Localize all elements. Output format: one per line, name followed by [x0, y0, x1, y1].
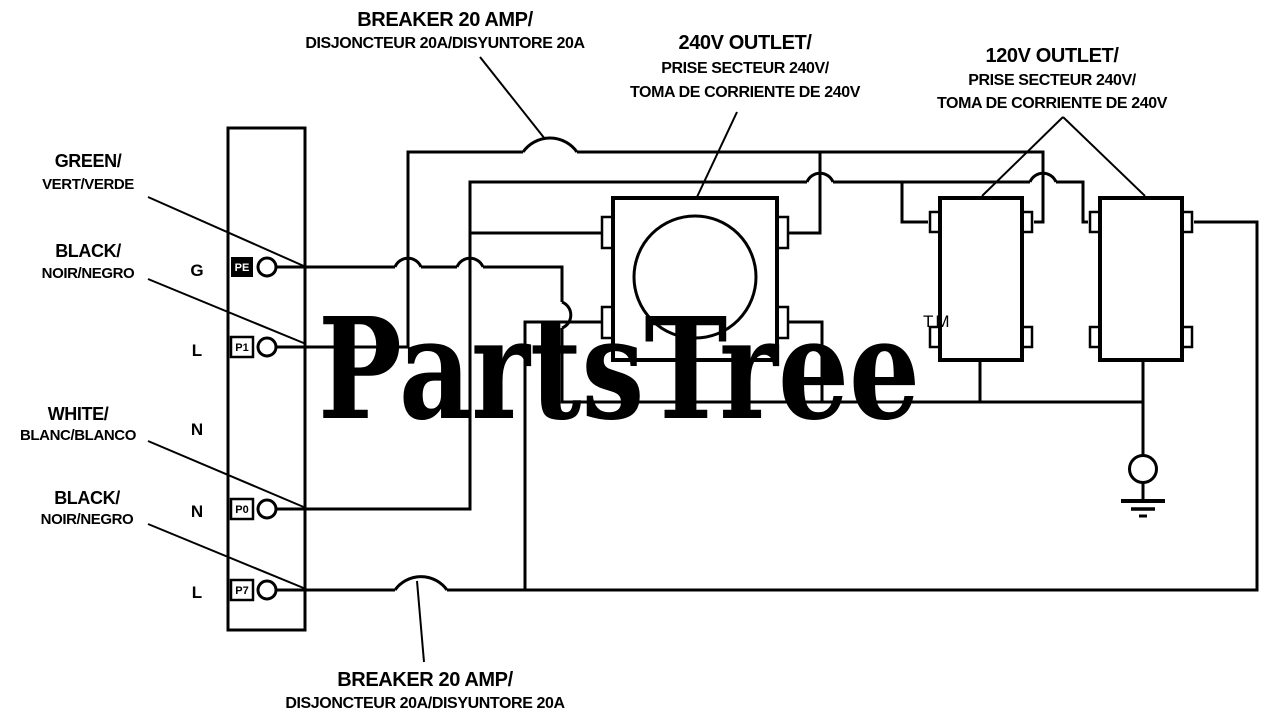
wiring-diagram-page: PartsTree TM G PE L P1 N N P0 L P7: [0, 0, 1280, 726]
wire-black-1-title: BLACK/: [55, 241, 121, 261]
ground-circle: [1130, 456, 1157, 483]
wire-black-2-subtitle: NOIR/NEGRO: [41, 511, 134, 528]
outlet-120v-b-body: [1100, 198, 1182, 360]
terminal-g-tag: PE: [235, 262, 250, 274]
label-breaker-bottom: BREAKER 20 AMP/ DISJONCTEUR 20A/DISYUNTO…: [285, 669, 565, 712]
panel-outline: [228, 128, 305, 630]
terminal-l1-letter: L: [192, 341, 202, 360]
outlet-120v-subtitle-fr: PRISE SECTEUR 240V/: [968, 72, 1137, 89]
breaker-bottom-subtitle: DISJONCTEUR 20A/DISYUNTORE 20A: [285, 695, 565, 712]
terminal-g: G PE: [190, 257, 276, 280]
breaker-top-subtitle: DISJONCTEUR 20A/DISYUNTORE 20A: [305, 35, 585, 52]
terminal-l1-screw: [258, 338, 276, 356]
leader-outlet-120v-right: [1063, 117, 1145, 196]
breaker-bottom-hump: [395, 577, 447, 590]
wire-white-title: WHITE/: [48, 404, 109, 424]
wire-green-title: GREEN/: [55, 151, 122, 171]
label-wire-black-1: BLACK/ NOIR/NEGRO: [42, 241, 135, 282]
outlet-120v-a-body: [940, 198, 1022, 360]
terminal-n1-letter: N: [191, 420, 203, 439]
terminal-l2-letter: L: [192, 583, 202, 602]
outlet-120v-a: [930, 198, 1032, 360]
watermark: PartsTree TM: [318, 288, 952, 452]
breaker-bottom-title: BREAKER 20 AMP/: [337, 669, 513, 691]
terminal-g-screw: [258, 258, 276, 276]
leader-breaker-top: [480, 57, 545, 139]
breaker-top-symbol: [523, 138, 577, 152]
breaker-top-title: BREAKER 20 AMP/: [357, 9, 533, 31]
label-wire-black-2: BLACK/ NOIR/NEGRO: [41, 488, 134, 528]
label-outlet-240v: 240V OUTLET/ PRISE SECTEUR 240V/ TOMA DE…: [630, 32, 861, 101]
ground-symbol: [1121, 456, 1165, 517]
generator-panel: [228, 128, 305, 630]
terminal-n2-screw: [258, 500, 276, 518]
wire-white-subtitle: BLANC/BLANCO: [20, 427, 137, 444]
terminal-l2: L P7: [192, 580, 276, 602]
leader-breaker-bottom: [417, 581, 424, 662]
terminal-l1-tag: P1: [235, 342, 248, 354]
outlet-120v-subtitle-es: TOMA DE CORRIENTE DE 240V: [937, 95, 1168, 112]
leader-outlet-240v: [697, 112, 737, 197]
label-outlet-120v: 120V OUTLET/ PRISE SECTEUR 240V/ TOMA DE…: [937, 45, 1168, 112]
terminal-n2-letter: N: [191, 502, 203, 521]
wire-black-2-title: BLACK/: [54, 488, 120, 508]
label-breaker-top: BREAKER 20 AMP/ DISJONCTEUR 20A/DISYUNTO…: [305, 9, 585, 52]
outlet-240v-subtitle-es: TOMA DE CORRIENTE DE 240V: [630, 84, 861, 101]
terminal-l2-screw: [258, 581, 276, 599]
outlet-240v-subtitle-fr: PRISE SECTEUR 240V/: [661, 60, 830, 77]
label-wire-green: GREEN/ VERT/VERDE: [42, 151, 134, 193]
breaker-bottom-symbol: [395, 577, 447, 590]
outlet-120v-title: 120V OUTLET/: [985, 45, 1119, 67]
terminal-n2: N P0: [191, 499, 276, 521]
wire-black-1-subtitle: NOIR/NEGRO: [42, 265, 135, 282]
wire-green-subtitle: VERT/VERDE: [42, 176, 134, 193]
terminal-n2-tag: P0: [235, 504, 248, 516]
terminal-n1: N: [191, 420, 203, 439]
terminal-g-letter: G: [190, 261, 203, 280]
wiring-diagram-canvas: PartsTree TM G PE L P1 N N P0 L P7: [0, 0, 1280, 726]
terminal-l2-tag: P7: [235, 585, 248, 597]
leader-outlet-120v-left: [982, 117, 1063, 196]
label-wire-white: WHITE/ BLANC/BLANCO: [20, 404, 137, 444]
terminal-l1: L P1: [192, 337, 276, 360]
outlet-240v-title: 240V OUTLET/: [678, 32, 812, 54]
breaker-top-hump: [523, 138, 577, 152]
outlet-120v-b: [1090, 198, 1192, 360]
